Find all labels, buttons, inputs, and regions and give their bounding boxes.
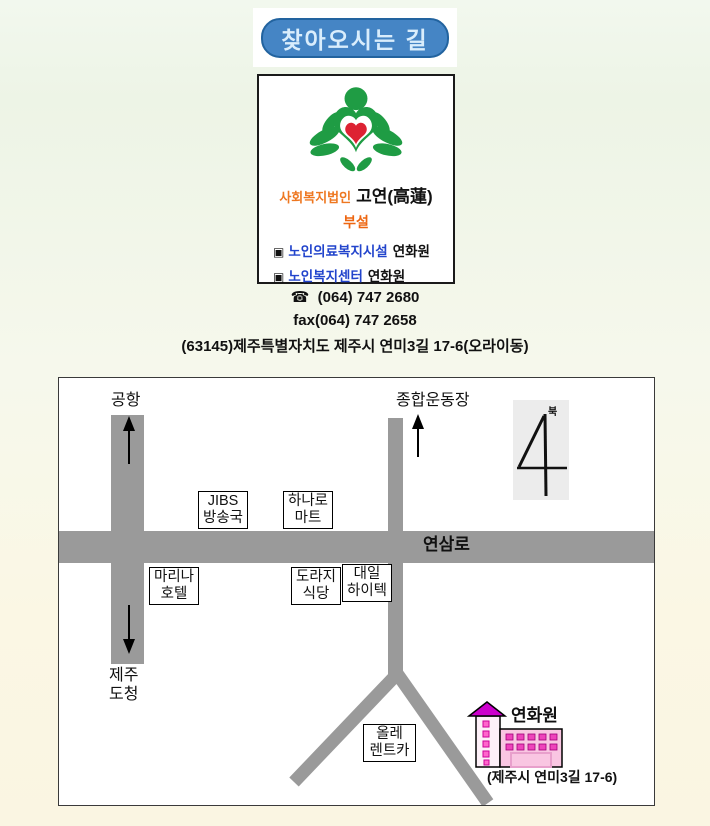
address-line: (63145)제주특별자치도 제주시 연미3길 17-6(오라이동) xyxy=(0,335,710,356)
destination-address: (제주시 연미3길 17-6) xyxy=(487,767,617,787)
landmark-line: 호텔 xyxy=(152,586,196,603)
facility-type: 노인복지센터 xyxy=(288,269,363,284)
landmark-line: 식당 xyxy=(294,586,338,603)
facility-name: 연화원 xyxy=(393,244,430,259)
landmark-olle: 올레 렌트카 xyxy=(363,724,416,762)
goyeon-logo-icon xyxy=(293,82,419,182)
airport-label: 공항 xyxy=(111,391,140,410)
facility-list: ▣노인의료복지시설연화원 ▣노인복지센터연화원 xyxy=(273,240,453,285)
destination-name: 연화원 xyxy=(511,701,558,726)
yeonsam-road-label: 연삼로 xyxy=(423,535,470,554)
north-label: 북 xyxy=(548,403,557,418)
facility-type: 노인의료복지시설 xyxy=(288,244,387,259)
landmark-line: 렌트카 xyxy=(366,743,413,760)
square-bullet-icon: ▣ xyxy=(273,245,284,259)
landmark-line: JIBS xyxy=(201,493,245,510)
landmark-line: 대일 xyxy=(345,566,389,583)
facility-name: 연화원 xyxy=(368,269,405,284)
landmark-daeil: 대일 하이텍 xyxy=(342,564,392,602)
org-name-label: 고연(高蓮) xyxy=(356,187,433,206)
north-compass-box xyxy=(513,400,569,500)
location-map: 공항 종합운동장 연삼로 제주 도청 북 JIBS 방송국 하나로 마트 마리나… xyxy=(58,377,655,806)
jeju-office-line1: 제주 xyxy=(109,666,138,685)
phone-line: ☎ (064) 747 2680 xyxy=(0,288,710,306)
stadium-road xyxy=(388,418,403,680)
landmark-line: 마트 xyxy=(286,510,330,527)
landmark-line: 하나로 xyxy=(286,493,330,510)
landmark-line: 올레 xyxy=(366,726,413,743)
landmark-line: 하이텍 xyxy=(345,583,389,600)
fax-line: fax(064) 747 2658 xyxy=(0,312,710,329)
facility-item: ▣노인복지센터연화원 xyxy=(273,265,453,285)
jeju-office-line2: 도청 xyxy=(109,685,138,704)
org-card: 사회복지법인고연(高蓮) 부설 ▣노인의료복지시설연화원 ▣노인복지센터연화원 xyxy=(257,74,455,284)
landmark-line: 방송국 xyxy=(201,510,245,527)
landmark-doraji: 도라지 식당 xyxy=(291,567,341,605)
landmark-jibs: JIBS 방송국 xyxy=(198,491,248,529)
contact-block: ☎ (064) 747 2680 fax(064) 747 2658 (6314… xyxy=(0,288,710,362)
org-subtitle: 부설 xyxy=(259,212,453,232)
title-banner-box: 찾아오시는 길 xyxy=(253,8,457,67)
stadium-label: 종합운동장 xyxy=(396,391,470,410)
page-title: 찾아오시는 길 xyxy=(261,18,449,58)
stadium-arrow-icon xyxy=(412,414,424,429)
jeju-office-label: 제주 도청 xyxy=(109,666,138,704)
landmark-marina: 마리나 호텔 xyxy=(149,567,199,605)
phone-number: (064) 747 2680 xyxy=(318,289,420,306)
yeonsam-road xyxy=(59,531,654,563)
phone-icon: ☎ xyxy=(291,289,310,306)
landmark-hanaro: 하나로 마트 xyxy=(283,491,333,529)
square-bullet-icon: ▣ xyxy=(273,270,284,284)
facility-item: ▣노인의료복지시설연화원 xyxy=(273,240,453,260)
org-title-line: 사회복지법인고연(高蓮) xyxy=(259,182,453,207)
org-type-label: 사회복지법인 xyxy=(279,190,351,205)
landmark-line: 마리나 xyxy=(152,569,196,586)
landmark-line: 도라지 xyxy=(294,569,338,586)
